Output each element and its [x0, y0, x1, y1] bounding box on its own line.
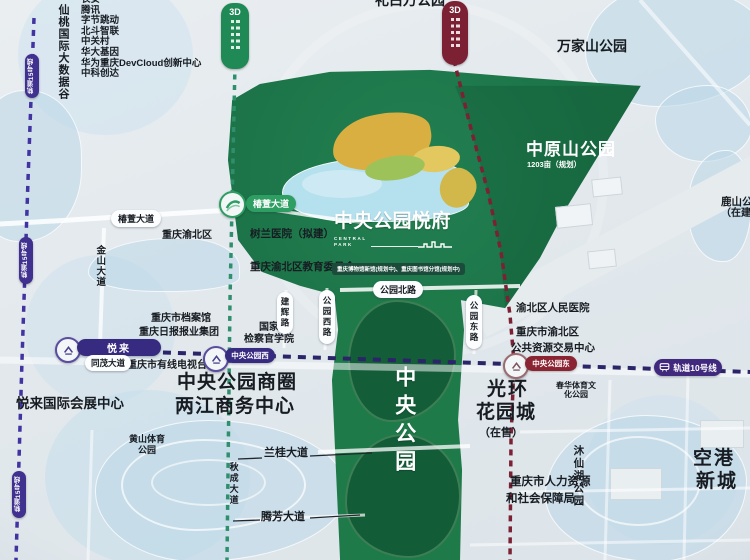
road-pill-park-north-text: 公园北路: [380, 283, 416, 296]
label-resource-center-l2: 公共资源交易中心: [511, 342, 595, 354]
train-icon: [659, 363, 670, 372]
label-yubei-hospital: 渝北区人民医院: [516, 302, 590, 314]
label-huangshan-park: 黄山体育 公园: [122, 434, 172, 455]
line15-badge: 轨道15号线: [19, 237, 33, 284]
badge-3d-maroon-text: 3D: [449, 5, 461, 15]
label-daily-press: 重庆日报报业集团: [139, 327, 219, 339]
label-lushan-park: 鹿山公园 （在建）: [721, 196, 750, 220]
title-rule: [371, 246, 418, 247]
metro-line-maroon: [454, 60, 514, 560]
road-pill-chunxuan-east-text: 椿萱大道: [253, 197, 289, 210]
station-pill-cp-east: 中央公园东: [525, 356, 577, 371]
label-road-tengfang: 腾芳大道: [261, 511, 305, 524]
skyline-icon: [418, 238, 452, 248]
interchange-icon: [219, 191, 246, 218]
project-subtitle-line2: PARK: [334, 242, 367, 248]
label-road-qiucheng: 秋成大道: [228, 462, 239, 508]
project-subtitle: CENTRAL PARK: [334, 236, 452, 248]
label-tech-valley-title: 仙桃国际大数据谷: [56, 4, 69, 104]
label-wanjiashan-park: 万家山公园: [557, 38, 627, 55]
line15-badge-text: 轨道15号线: [27, 58, 37, 94]
line10-badge: 轨道10号线: [654, 359, 722, 376]
road-pill-park-east-text: 公园东路: [468, 301, 480, 343]
label-chunhua-l2: 化公园: [552, 390, 600, 399]
label-prosecutor-l2: 检察官学院: [232, 334, 306, 346]
project-title: 中央公园悦府: [334, 206, 452, 233]
road-pill-park-west-text: 公园西路: [321, 296, 333, 338]
badge-3d-green-text: 3D: [229, 7, 241, 17]
label-hr-bureau-l2: 和社会保障局: [506, 493, 575, 507]
road-pill-tongmao-text: 同茂大道: [91, 357, 125, 369]
label-central-park: 中央公园: [391, 366, 416, 484]
label-road-jinshan: 金山大道: [94, 245, 105, 291]
real-estate-location-map: 中央公园悦府 CENTRAL PARK 中央公园 仙桃国际大数据谷 长安 腾讯 …: [0, 0, 750, 560]
road-pill-jianhui: 建辉路: [277, 292, 293, 334]
label-road-langui: 兰桂大道: [264, 447, 308, 460]
line15-badge: 轨道15号线: [25, 54, 39, 98]
line10-badge-text: 轨道10号线: [673, 362, 716, 374]
station-pill-cp-west-text: 中央公园西: [231, 350, 269, 361]
label-huangshan-l1: 黄山体育: [122, 434, 172, 445]
museum-note-pill: 重庆博物馆新馆(规划中)、重庆图书馆分馆(规划中): [332, 263, 465, 275]
label-archives: 重庆市档案馆: [151, 313, 211, 325]
label-resource-center-l1: 重庆市渝北区: [516, 326, 579, 338]
label-guanghuan-l2: 花园城: [476, 402, 536, 424]
transit-lines: [0, 0, 750, 560]
badge-3d-maroon: 3D: [442, 1, 468, 65]
label-hr-bureau-l1: 重庆市人力资源: [510, 476, 591, 490]
label-konggang-l2: 新城: [696, 471, 738, 493]
station-pill-yuelai-text: 悦来: [107, 340, 131, 355]
road-pill-jianhui-text: 建辉路: [279, 297, 291, 329]
road-pill-chunxuan-west: 椿萱大道: [111, 210, 161, 227]
label-konggang-l1: 空港: [693, 448, 735, 470]
label-guanghuan-l1: 光环: [487, 379, 529, 401]
road-pill-park-north: 公园北路: [373, 281, 423, 298]
label-shulan-hospital: 树兰医院（拟建）: [250, 228, 334, 240]
label-lushan-name: 鹿山公园: [721, 196, 750, 208]
label-biz-circle-l2: 两江商务中心: [175, 396, 295, 418]
label-prosecutor-l1: 国家: [232, 322, 306, 334]
label-cable-tv: 重庆市有线电视台: [127, 360, 207, 372]
label-yuelai-expo: 悦来国际会展中心: [16, 396, 124, 412]
label-zhongyuanshan-park: 中原山公园: [526, 140, 616, 160]
line15-badge-text: 轨道15号线: [14, 476, 24, 512]
badge-3d-green: 3D: [221, 3, 249, 69]
label-chunhua-park: 春华体育文 化公园: [552, 381, 600, 400]
project-title-block: 中央公园悦府 CENTRAL PARK: [334, 206, 452, 248]
road-pill-park-east: 公园东路: [466, 295, 482, 349]
label-huangshan-l2: 公园: [122, 445, 172, 456]
line15-badge-text: 轨道15号线: [21, 242, 31, 278]
label-guanghuan-status: （在售）: [479, 427, 523, 440]
label-top-park-clipped: 礼白万公园: [375, 0, 445, 9]
station-pill-yuelai: 悦来: [77, 339, 161, 356]
station-pill-cp-west: 中央公园西: [225, 348, 275, 363]
line15-badge: 轨道15号线: [12, 471, 26, 518]
road-pill-chunxuan-east: 椿萱大道: [246, 195, 296, 212]
label-yubei-district: 重庆渝北区: [162, 230, 212, 242]
label-zhongyuanshan-area: 1203亩（规划）: [527, 161, 581, 170]
tech-valley-company-list: 长安 腾讯 字节跳动 北斗智联 中关村 华大基因 华为重庆DevCloud创新中…: [81, 0, 201, 80]
road-pill-chunxuan-west-text: 椿萱大道: [118, 212, 154, 225]
company-item: 中科创达: [81, 69, 201, 80]
road-pill-tongmao: 同茂大道: [85, 355, 131, 371]
project-subtitle-line1: CENTRAL: [334, 236, 367, 242]
label-biz-circle-l1: 中央公园商圈: [177, 372, 297, 394]
company-item: 华大基因: [81, 48, 201, 59]
label-prosecutor-academy: 国家 检察官学院: [232, 322, 306, 346]
museum-note-text: 重庆博物馆新馆(规划中)、重庆图书馆分馆(规划中): [337, 267, 460, 273]
station-pill-cp-east-text: 中央公园东: [532, 358, 570, 369]
road-pill-park-west: 公园西路: [319, 290, 335, 344]
label-lushan-status: （在建）: [721, 208, 750, 220]
